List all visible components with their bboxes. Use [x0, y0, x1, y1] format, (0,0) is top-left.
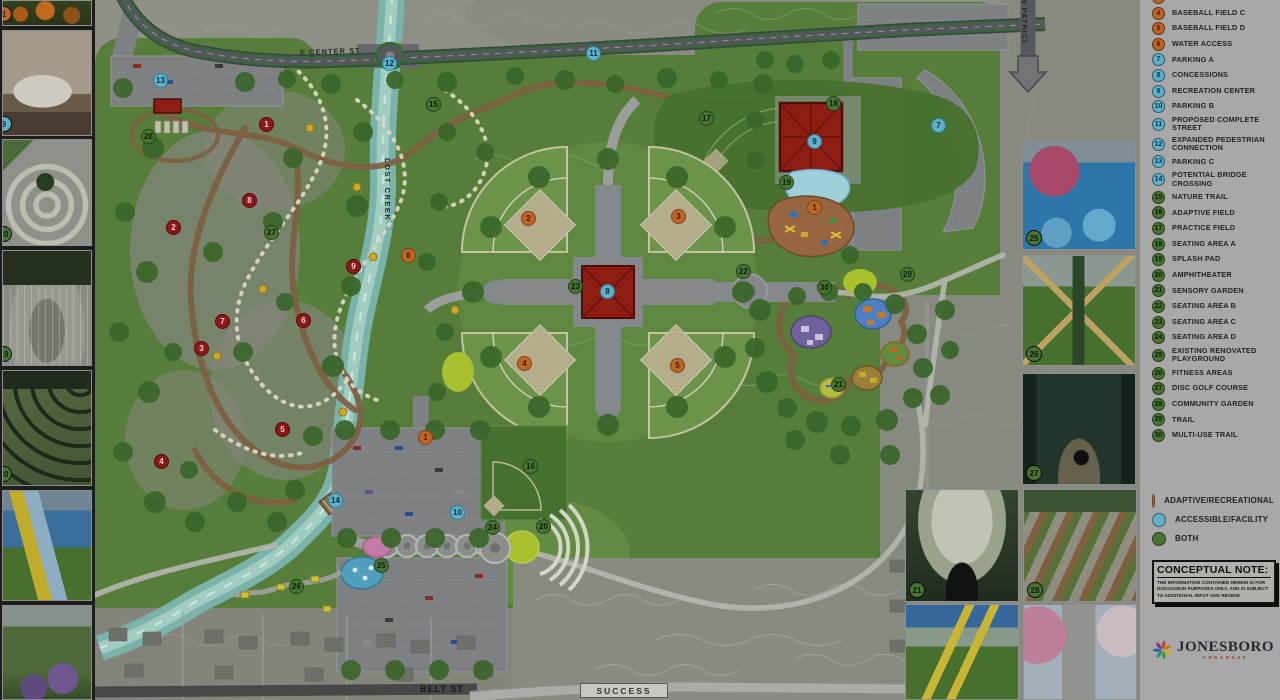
legend-badge-11: 11	[1152, 118, 1165, 131]
legend-item-8: 8CONCESSIONS	[1152, 69, 1274, 82]
legend-label: EXPANDED PEDESTRIAN CONNECTION	[1172, 136, 1274, 153]
legend-badge-18: 18	[1152, 238, 1165, 251]
photo-nature-play: 1	[2, 0, 92, 26]
legend-label: EXISTING RENOVATED PLAYGROUND	[1172, 347, 1274, 364]
legend-item-5: 5BASEBALL FIELD D	[1152, 22, 1274, 35]
map-marker-both-21: 21	[831, 377, 846, 392]
photo-renovated-playground: 25	[1022, 140, 1136, 250]
legend-badge-27: 27	[1152, 382, 1165, 395]
key-label: BOTH	[1175, 534, 1198, 543]
legend-label: BASEBALL FIELD D	[1172, 24, 1274, 33]
map-marker-facility-7: 7	[931, 118, 946, 133]
map-marker-facility-11: 11	[586, 46, 601, 61]
map-marker-both-23: 23	[568, 279, 583, 294]
legend-key: ADAPTIVE/RECREATIONALACCESSIBLE/FACILITY…	[1152, 494, 1274, 546]
legend-label: TRAIL	[1172, 416, 1274, 425]
legend-label: PRACTICE FIELD	[1172, 224, 1274, 233]
photo-adaptive-swing	[905, 604, 1019, 700]
legend-badge-24: 24	[1152, 331, 1165, 344]
map-marker-facility-8: 8	[600, 284, 615, 299]
photo-changing-room: 9	[2, 30, 92, 136]
legend-badge-29: 29	[1152, 413, 1165, 426]
legend-badge-15: 15	[1152, 191, 1165, 204]
legend-badge-23: 23	[1152, 316, 1165, 329]
photo-badge-1: 1	[2, 6, 12, 22]
photo-badge-19: 19	[2, 346, 12, 362]
key-label: ACCESSIBLE/FACILITY	[1175, 515, 1268, 524]
photo-fitness-swings: 26	[1022, 255, 1136, 366]
legend-label: RECREATION CENTER	[1172, 87, 1274, 96]
creek-label-lost-creek: LOST CREEK	[383, 158, 392, 250]
legend-item-24: 24SEATING AREA D	[1152, 331, 1274, 344]
legend-label: SEATING AREA B	[1172, 302, 1274, 311]
legend-item-19: 19SPLASH PAD	[1152, 253, 1274, 266]
legend-badge-3: 3	[1152, 0, 1165, 4]
street-label-success: SUCCESS	[580, 683, 668, 698]
map-marker-disc_golf_holes-1: 1	[259, 117, 274, 132]
map-marker-recreational-1: 1	[418, 430, 433, 445]
map-marker-recreational-4: 4	[517, 356, 532, 371]
legend-label: ADAPTIVE FIELD	[1172, 209, 1274, 218]
legend-item-15: 15NATURE TRAIL	[1152, 191, 1274, 204]
legend-badge-17: 17	[1152, 222, 1165, 235]
photo-disc-golf: 27	[1022, 373, 1136, 485]
map-marker-disc_golf_holes-2: 2	[166, 220, 181, 235]
legend-panel: 3BASEBALL FIELD B4BASEBALL FIELD C5BASEB…	[1140, 0, 1280, 700]
map-marker-both-17: 17	[699, 111, 714, 126]
map-marker-both-29: 29	[900, 267, 915, 282]
map-marker-both-16: 16	[523, 459, 538, 474]
legend-item-27: 27DISC GOLF COURSE	[1152, 382, 1274, 395]
key-dot-adaptive	[1152, 494, 1155, 508]
legend-item-10: 10PARKING B	[1152, 100, 1274, 113]
map-marker-both-28: 28	[141, 129, 156, 144]
conceptual-note-body: THE INFORMATION CONTAINED HEREIN IS FOR …	[1157, 580, 1271, 599]
legend-badge-28: 28	[1152, 398, 1165, 411]
map-marker-both-18: 18	[826, 96, 841, 111]
legend-item-3: 3BASEBALL FIELD B	[1152, 0, 1274, 4]
map-marker-recreational-3: 3	[671, 209, 686, 224]
legend-item-6: 6WATER ACCESS	[1152, 38, 1274, 51]
map-marker-disc_golf_holes-9: 9	[346, 259, 361, 274]
legend-label: SEATING AREA A	[1172, 240, 1274, 249]
legend-badge-14: 14	[1152, 173, 1165, 186]
map-marker-recreational-6: 6	[401, 248, 416, 263]
legend-badge-9: 9	[1152, 85, 1165, 98]
street-label-belt-st: BELT ST	[420, 684, 464, 694]
map-marker-both-30: 30	[817, 280, 832, 295]
legend-label: NATURE TRAIL	[1172, 193, 1274, 202]
key-dot-accessible	[1152, 513, 1166, 527]
legend-label: BASEBALL FIELD B	[1172, 0, 1274, 2]
legend-item-7: 7PARKING A	[1152, 53, 1274, 66]
map-marker-disc_golf_holes-5: 5	[275, 422, 290, 437]
photo-badge-27: 27	[1026, 465, 1042, 481]
legend-badge-22: 22	[1152, 300, 1165, 313]
jonesboro-logo: JONESBORO ARKANSAS	[1152, 638, 1274, 662]
conceptual-note: CONCEPTUAL NOTE: THE INFORMATION CONTAIN…	[1152, 560, 1276, 604]
legend-item-20: 20AMPHITHEATER	[1152, 269, 1274, 282]
legend-label: SEATING AREA C	[1172, 318, 1274, 327]
photo-garden-bench: 21	[905, 489, 1019, 602]
legend-label: COMMUNITY GARDEN	[1172, 400, 1274, 409]
photo-community-garden: 28	[1023, 489, 1137, 602]
legend-label: FITNESS AREAS	[1172, 369, 1274, 378]
legend-badge-12: 12	[1152, 138, 1165, 151]
legend-badge-26: 26	[1152, 367, 1165, 380]
legend-badge-5: 5	[1152, 22, 1165, 35]
map-marker-disc_golf_holes-6: 6	[296, 313, 311, 328]
legend-key-both: BOTH	[1152, 532, 1274, 546]
legend-badge-21: 21	[1152, 284, 1165, 297]
legend-badge-7: 7	[1152, 53, 1165, 66]
legend-item-30: 30MULTI-USE TRAIL	[1152, 429, 1274, 442]
map-marker-both-22: 22	[736, 264, 751, 279]
legend-item-12: 12EXPANDED PEDESTRIAN CONNECTION	[1152, 136, 1274, 153]
photo-badge-21: 21	[909, 582, 925, 598]
legend-key-accessible: ACCESSIBLE/FACILITY	[1152, 513, 1274, 527]
legend-label: POTENTIAL BRIDGE CROSSING	[1172, 171, 1274, 188]
legend-item-16: 16ADAPTIVE FIELD	[1152, 206, 1274, 219]
photo-amphitheater: 20	[2, 370, 92, 486]
legend-label: PROPOSED COMPLETE STREET	[1172, 116, 1274, 133]
legend-badge-25: 25	[1152, 349, 1165, 362]
legend-badge-30: 30	[1152, 429, 1165, 442]
street-label-n-patrick: N PATRICK ST	[1020, 0, 1029, 42]
photo-playground-slide	[2, 490, 92, 601]
photo-badge-9: 9	[2, 116, 12, 132]
legend-item-26: 26FITNESS AREAS	[1152, 367, 1274, 380]
legend-label: WATER ACCESS	[1172, 40, 1274, 49]
legend-label: PARKING B	[1172, 102, 1274, 111]
legend-label: SEATING AREA D	[1172, 333, 1274, 342]
map-marker-recreational-1: 1	[807, 200, 822, 215]
legend-label: DISC GOLF COURSE	[1172, 384, 1274, 393]
legend-label: SENSORY GARDEN	[1172, 287, 1274, 296]
legend-label: MULTI-USE TRAIL	[1172, 431, 1274, 440]
legend-item-29: 29TRAIL	[1152, 413, 1274, 426]
map-marker-facility-10: 10	[450, 505, 465, 520]
legend-label: AMPHITHEATER	[1172, 271, 1274, 280]
photo-blossom-path	[1023, 604, 1137, 700]
photo-badge-25: 25	[1026, 230, 1042, 246]
legend-badge-10: 10	[1152, 100, 1165, 113]
legend-item-25: 25EXISTING RENOVATED PLAYGROUND	[1152, 347, 1274, 364]
key-dot-both	[1152, 532, 1166, 546]
legend-item-22: 22SEATING AREA B	[1152, 300, 1274, 313]
legend-item-21: 21SENSORY GARDEN	[1152, 284, 1274, 297]
legend-badge-20: 20	[1152, 269, 1165, 282]
map-marker-both-26: 26	[289, 579, 304, 594]
legend-badge-4: 4	[1152, 7, 1165, 20]
legend-badge-8: 8	[1152, 69, 1165, 82]
legend-item-4: 4BASEBALL FIELD C	[1152, 7, 1274, 20]
photo-badge-20: 20	[2, 466, 12, 482]
logo-name: JONESBORO	[1177, 639, 1274, 656]
photo-badge-30: 30	[2, 226, 12, 242]
legend-label: CONCESSIONS	[1172, 71, 1274, 80]
legend-label: SPLASH PAD	[1172, 255, 1274, 264]
legend-key-adaptive: ADAPTIVE/RECREATIONAL	[1152, 494, 1274, 508]
map-marker-facility-14: 14	[328, 493, 343, 508]
photo-spiral-garden: 30	[2, 139, 92, 246]
legend-badge-6: 6	[1152, 38, 1165, 51]
photo-badge-26: 26	[1026, 346, 1042, 362]
photo-badge-28: 28	[1027, 582, 1043, 598]
conceptual-note-title: CONCEPTUAL NOTE:	[1157, 564, 1271, 578]
key-label: ADAPTIVE/RECREATIONAL	[1164, 496, 1274, 505]
legend-item-28: 28COMMUNITY GARDEN	[1152, 398, 1274, 411]
map-marker-recreational-2: 2	[521, 211, 536, 226]
map-marker-disc_golf_holes-3: 3	[194, 341, 209, 356]
map-marker-disc_golf_holes-4: 4	[154, 454, 169, 469]
map-marker-both-25: 25	[374, 558, 389, 573]
logo-subtitle: ARKANSAS	[1203, 655, 1249, 660]
legend-badge-13: 13	[1152, 155, 1165, 168]
legend-item-11: 11PROPOSED COMPLETE STREET	[1152, 116, 1274, 133]
map-marker-both-15: 15	[426, 97, 441, 112]
map-marker-facility-9: 9	[807, 134, 822, 149]
legend-item-13: 13PARKING C	[1152, 155, 1274, 168]
legend-badge-16: 16	[1152, 206, 1165, 219]
map-marker-facility-12: 12	[382, 56, 397, 71]
jonesboro-star-icon	[1152, 638, 1173, 662]
legend-label: BASEBALL FIELD C	[1172, 9, 1274, 18]
legend-label: PARKING A	[1172, 56, 1274, 65]
legend-items: 3BASEBALL FIELD B4BASEBALL FIELD C5BASEB…	[1152, 0, 1274, 442]
map-marker-both-20: 20	[536, 519, 551, 534]
legend-item-17: 17PRACTICE FIELD	[1152, 222, 1274, 235]
park-master-plan-image: E CENTER ST LOST CREEK N PATRICK ST BELT…	[0, 0, 1280, 700]
photo-flower-garden	[2, 605, 92, 700]
legend-label: PARKING C	[1172, 158, 1274, 167]
map-marker-both-24: 24	[485, 520, 500, 535]
map-marker-disc_golf_holes-8: 8	[242, 193, 257, 208]
map-marker-disc_golf_holes-7: 7	[215, 314, 230, 329]
map-marker-recreational-5: 5	[670, 358, 685, 373]
left-photo-strip: 19301920	[0, 0, 95, 700]
map-marker-both-19: 19	[779, 175, 794, 190]
map-marker-both-27: 27	[264, 225, 279, 240]
legend-item-9: 9RECREATION CENTER	[1152, 85, 1274, 98]
legend-badge-19: 19	[1152, 253, 1165, 266]
legend-item-23: 23SEATING AREA C	[1152, 316, 1274, 329]
map-marker-facility-13: 13	[153, 73, 168, 88]
photo-splash-fountain: 19	[2, 250, 92, 366]
legend-item-14: 14POTENTIAL BRIDGE CROSSING	[1152, 171, 1274, 188]
legend-item-18: 18SEATING AREA A	[1152, 238, 1274, 251]
